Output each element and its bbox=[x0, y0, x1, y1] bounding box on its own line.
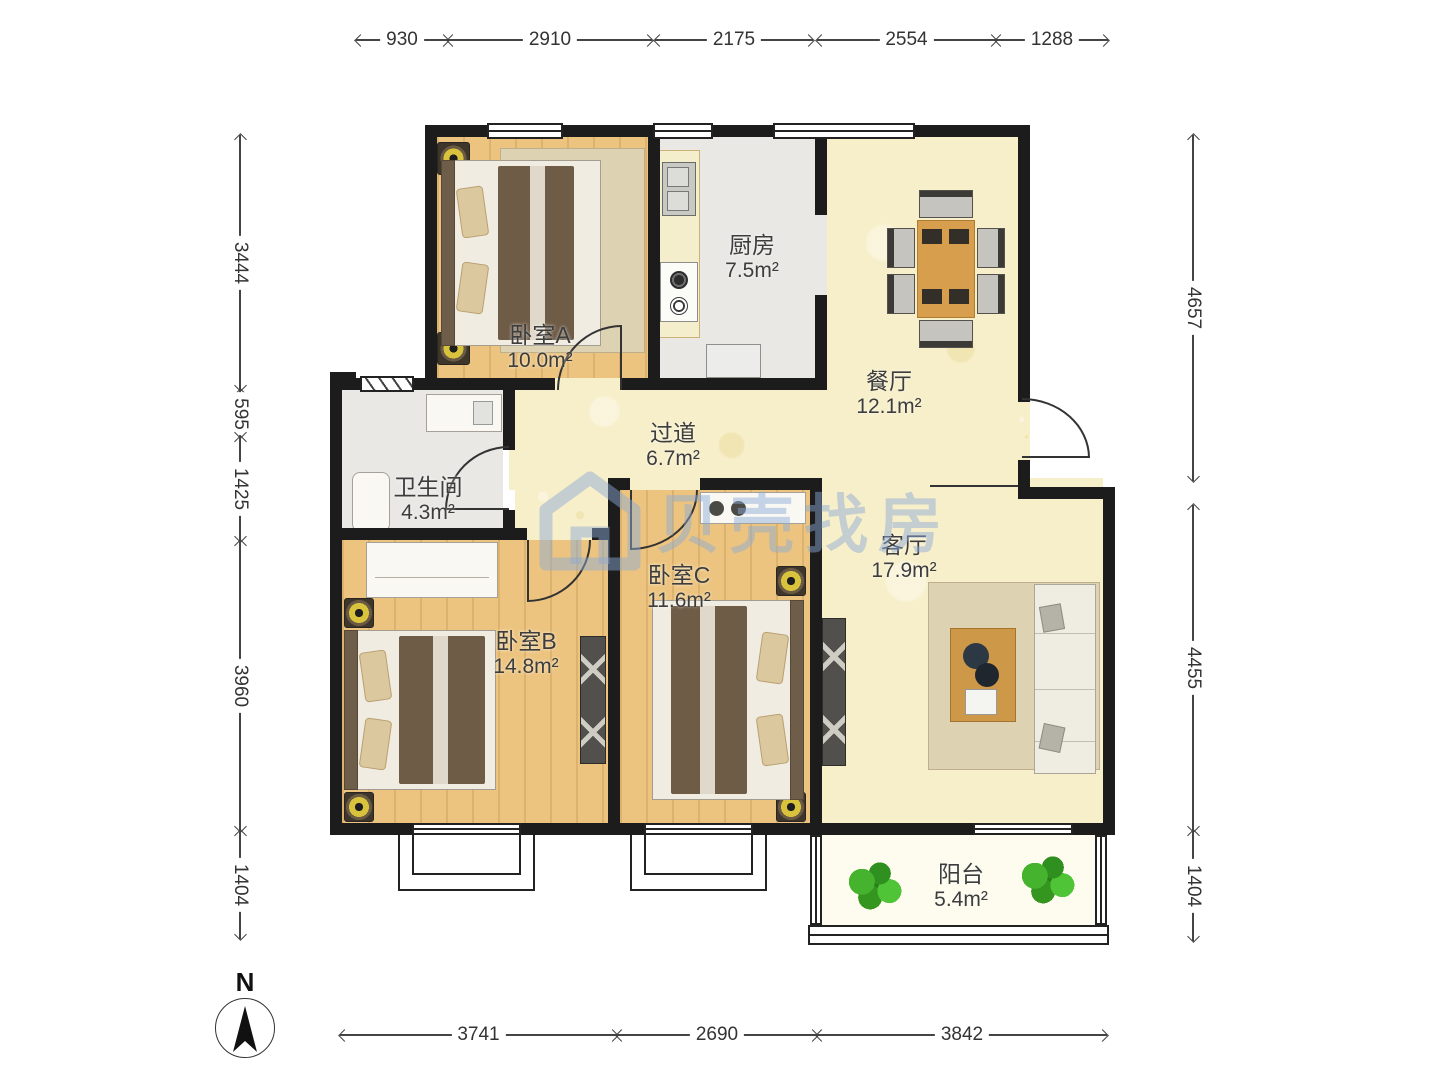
nightstand-lamp bbox=[344, 792, 374, 822]
bowl bbox=[975, 663, 999, 687]
dim-value: 1404 bbox=[229, 858, 251, 912]
room-area: 14.8m² bbox=[446, 654, 606, 679]
room-label-bedroom-c: 卧室C 11.6m² bbox=[599, 562, 759, 613]
tray bbox=[965, 689, 997, 715]
sink-basin bbox=[667, 191, 689, 211]
window bbox=[487, 123, 563, 139]
placemat bbox=[949, 229, 969, 244]
wall bbox=[330, 823, 835, 835]
room-name: 卧室B bbox=[446, 628, 606, 654]
wall bbox=[608, 478, 630, 490]
balcony-window-side bbox=[1095, 835, 1107, 925]
wall bbox=[1018, 487, 1115, 499]
door-arc-entry bbox=[1022, 398, 1090, 458]
wall bbox=[648, 137, 660, 378]
dining-chair bbox=[887, 228, 915, 268]
kitchen-sink bbox=[662, 162, 696, 216]
dim-top-1: 930 bbox=[356, 30, 448, 50]
bed bbox=[441, 160, 601, 346]
placemat bbox=[922, 289, 942, 304]
room-area: 7.5m² bbox=[672, 258, 832, 283]
room-area: 10.0m² bbox=[460, 348, 620, 373]
window bbox=[644, 823, 753, 835]
dining-table bbox=[917, 220, 975, 318]
sofa-seam bbox=[1035, 689, 1095, 690]
compass-dial bbox=[215, 998, 275, 1058]
wall bbox=[1018, 125, 1030, 402]
dim-value: 3842 bbox=[935, 1024, 989, 1046]
room-name: 阳台 bbox=[881, 861, 1041, 887]
wall bbox=[608, 478, 620, 823]
bed-headboard bbox=[790, 600, 804, 800]
dresser bbox=[366, 542, 498, 598]
wall bbox=[425, 378, 555, 390]
dim-top-5: 1288 bbox=[996, 30, 1108, 50]
compass: N bbox=[212, 968, 278, 1058]
pillow bbox=[756, 713, 790, 766]
dim-value: 3960 bbox=[229, 659, 251, 713]
wall bbox=[700, 478, 815, 490]
dim-left-4: 3960 bbox=[230, 541, 250, 831]
dim-top-3: 2175 bbox=[655, 30, 813, 50]
dresser-knob bbox=[731, 501, 746, 516]
dining-chair bbox=[919, 190, 973, 218]
dim-value: 3741 bbox=[451, 1024, 505, 1046]
sink-basin bbox=[667, 167, 689, 187]
dim-value: 3444 bbox=[229, 235, 251, 289]
wall bbox=[622, 378, 827, 390]
nightstand-lamp bbox=[776, 566, 806, 596]
room-name: 卧室A bbox=[460, 322, 620, 348]
bed-runner bbox=[530, 166, 545, 340]
room-label-bedroom-a: 卧室A 10.0m² bbox=[460, 322, 620, 373]
bed-headboard bbox=[344, 630, 358, 790]
room-divider-line bbox=[930, 485, 1018, 487]
sofa-pillow bbox=[1039, 603, 1065, 632]
room-name: 客厅 bbox=[824, 532, 984, 558]
pillow bbox=[456, 261, 490, 314]
dim-value: 4657 bbox=[1182, 281, 1204, 335]
room-name: 过道 bbox=[593, 420, 753, 446]
room-label-bathroom: 卫生间 4.3m² bbox=[348, 474, 508, 525]
wall bbox=[330, 528, 527, 540]
dresser bbox=[700, 492, 806, 524]
bay-window-inner bbox=[644, 835, 753, 875]
pillow bbox=[756, 631, 790, 684]
bed-headboard bbox=[441, 160, 455, 346]
dim-left-2: 595 bbox=[230, 390, 250, 437]
wall bbox=[425, 137, 437, 390]
dim-value: 4455 bbox=[1182, 641, 1204, 695]
pillow bbox=[359, 649, 393, 702]
dim-value: 2554 bbox=[879, 29, 933, 51]
room-area: 17.9m² bbox=[824, 558, 984, 583]
bay-window-inner bbox=[412, 835, 521, 875]
compass-needle-notch bbox=[233, 1041, 257, 1052]
balcony-sliding-door bbox=[973, 823, 1073, 835]
room-label-kitchen: 厨房 7.5m² bbox=[672, 232, 832, 283]
sofa-seam bbox=[1035, 633, 1095, 634]
dim-value: 1425 bbox=[229, 462, 251, 516]
bed bbox=[652, 600, 804, 800]
sofa-pillow bbox=[1039, 723, 1066, 753]
placemat bbox=[922, 229, 942, 244]
room-area: 11.6m² bbox=[599, 588, 759, 613]
floorplan-canvas: 卧室A 10.0m² 厨房 7.5m² 餐厅 12.1m² 过道 6.7m² 卫… bbox=[0, 0, 1440, 1080]
dim-left-5: 1404 bbox=[230, 831, 250, 939]
room-label-living: 客厅 17.9m² bbox=[824, 532, 984, 583]
fridge bbox=[706, 344, 761, 378]
window bbox=[412, 823, 521, 835]
dining-chair bbox=[887, 274, 915, 314]
balcony-window-side bbox=[810, 835, 822, 925]
room-area: 5.4m² bbox=[881, 887, 1041, 912]
pillow bbox=[359, 717, 393, 770]
wall bbox=[1018, 460, 1030, 487]
tv-cabinet bbox=[822, 618, 846, 766]
pillow bbox=[456, 185, 490, 238]
window-bathroom bbox=[360, 376, 414, 392]
wall bbox=[330, 390, 342, 835]
dim-value: 1288 bbox=[1025, 29, 1079, 51]
dim-right-2: 4455 bbox=[1183, 505, 1203, 831]
placemat bbox=[949, 289, 969, 304]
dim-value: 1404 bbox=[1182, 859, 1204, 913]
dim-value: 2690 bbox=[690, 1024, 744, 1046]
sofa bbox=[1034, 584, 1096, 774]
dresser-line bbox=[375, 577, 489, 578]
balcony-window bbox=[808, 925, 1109, 945]
wall bbox=[810, 478, 822, 823]
dim-bottom-2: 2690 bbox=[617, 1025, 817, 1045]
window bbox=[773, 123, 915, 139]
window bbox=[653, 123, 713, 139]
dim-bottom-1: 3741 bbox=[340, 1025, 617, 1045]
dim-value: 2910 bbox=[523, 29, 577, 51]
room-name: 卧室C bbox=[599, 562, 759, 588]
dim-value: 930 bbox=[380, 29, 424, 51]
dining-chair bbox=[977, 228, 1005, 268]
room-label-hallway: 过道 6.7m² bbox=[593, 420, 753, 471]
wall bbox=[330, 372, 356, 390]
room-label-balcony: 阳台 5.4m² bbox=[881, 861, 1041, 912]
dining-chair bbox=[919, 320, 973, 348]
wall bbox=[503, 390, 515, 450]
bathroom-sink-counter bbox=[426, 394, 502, 432]
room-name: 卫生间 bbox=[348, 474, 508, 500]
room-label-dining: 餐厅 12.1m² bbox=[809, 368, 969, 419]
room-area: 6.7m² bbox=[593, 446, 753, 471]
dining-chair bbox=[977, 274, 1005, 314]
dim-value: 2175 bbox=[707, 29, 761, 51]
bed-runner bbox=[700, 606, 715, 794]
room-area: 4.3m² bbox=[348, 500, 508, 525]
dim-left-1: 3444 bbox=[230, 135, 250, 390]
dim-value: 595 bbox=[229, 392, 251, 436]
burner bbox=[670, 297, 688, 315]
washbasin bbox=[473, 401, 493, 425]
room-area: 12.1m² bbox=[809, 394, 969, 419]
wall bbox=[1103, 499, 1115, 835]
dim-bottom-3: 3842 bbox=[817, 1025, 1107, 1045]
wall bbox=[815, 137, 827, 215]
dresser-knob bbox=[709, 501, 724, 516]
compass-north-label: N bbox=[212, 968, 278, 996]
coffee-table bbox=[950, 628, 1016, 722]
room-name: 厨房 bbox=[672, 232, 832, 258]
dim-right-3: 1404 bbox=[1183, 831, 1203, 941]
nightstand-lamp bbox=[344, 598, 374, 628]
room-name: 餐厅 bbox=[809, 368, 969, 394]
dim-left-3: 1425 bbox=[230, 437, 250, 541]
dim-top-2: 2910 bbox=[448, 30, 652, 50]
dim-top-4: 2554 bbox=[817, 30, 996, 50]
room-label-bedroom-b: 卧室B 14.8m² bbox=[446, 628, 606, 679]
dim-right-1: 4657 bbox=[1183, 135, 1203, 481]
